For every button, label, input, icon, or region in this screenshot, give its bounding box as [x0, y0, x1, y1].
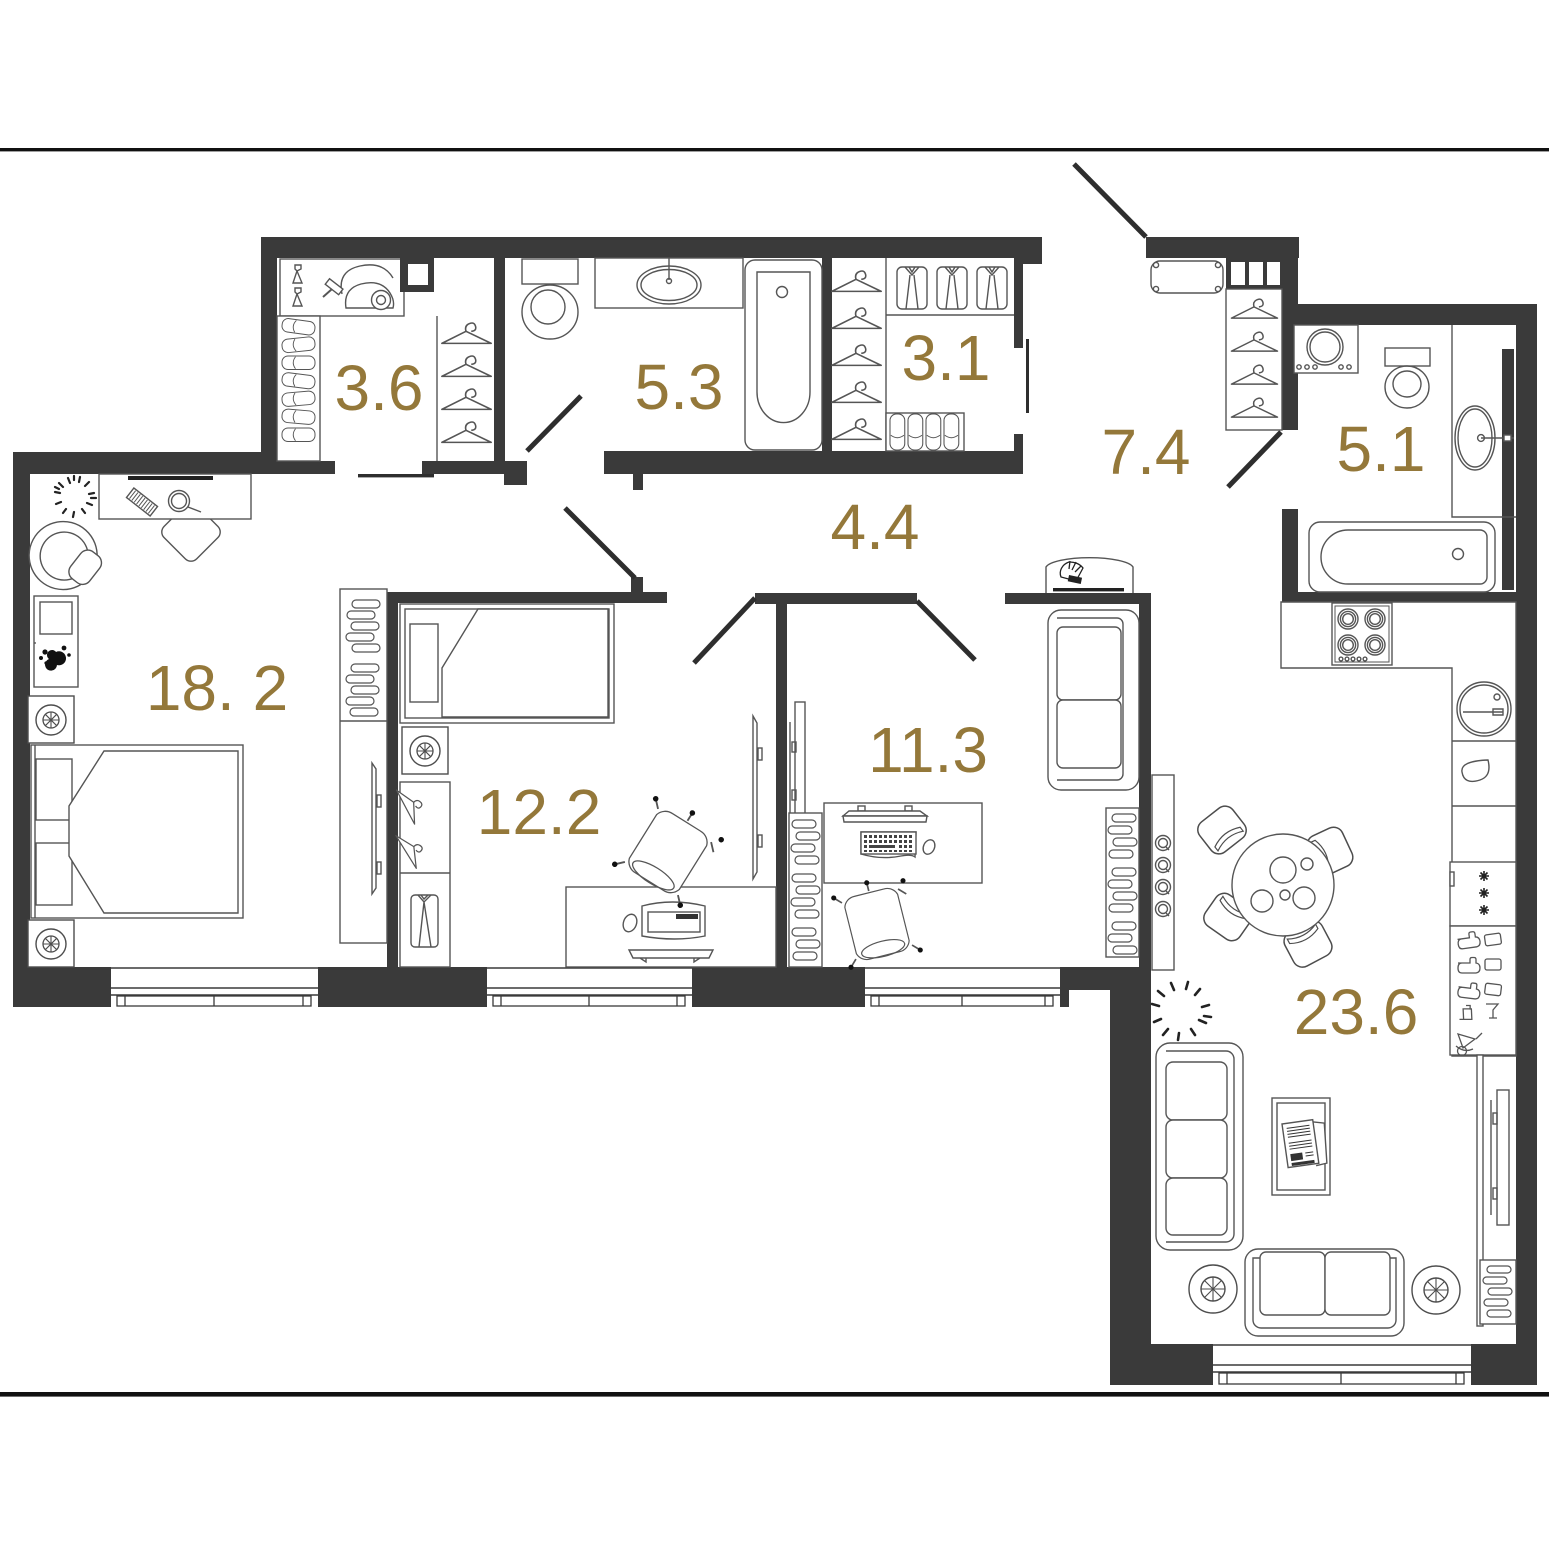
svg-text:18. 2: 18. 2 [146, 652, 288, 724]
svg-text:11.3: 11.3 [868, 714, 988, 786]
svg-text:5.1: 5.1 [1337, 413, 1426, 485]
svg-text:4.4: 4.4 [831, 491, 920, 563]
svg-text:3.1: 3.1 [902, 322, 991, 394]
svg-text:23.6: 23.6 [1294, 976, 1419, 1048]
svg-text:3.6: 3.6 [335, 352, 424, 424]
svg-text:5.3: 5.3 [635, 351, 724, 423]
svg-text:12.2: 12.2 [477, 776, 602, 848]
svg-text:7.4: 7.4 [1102, 416, 1191, 488]
